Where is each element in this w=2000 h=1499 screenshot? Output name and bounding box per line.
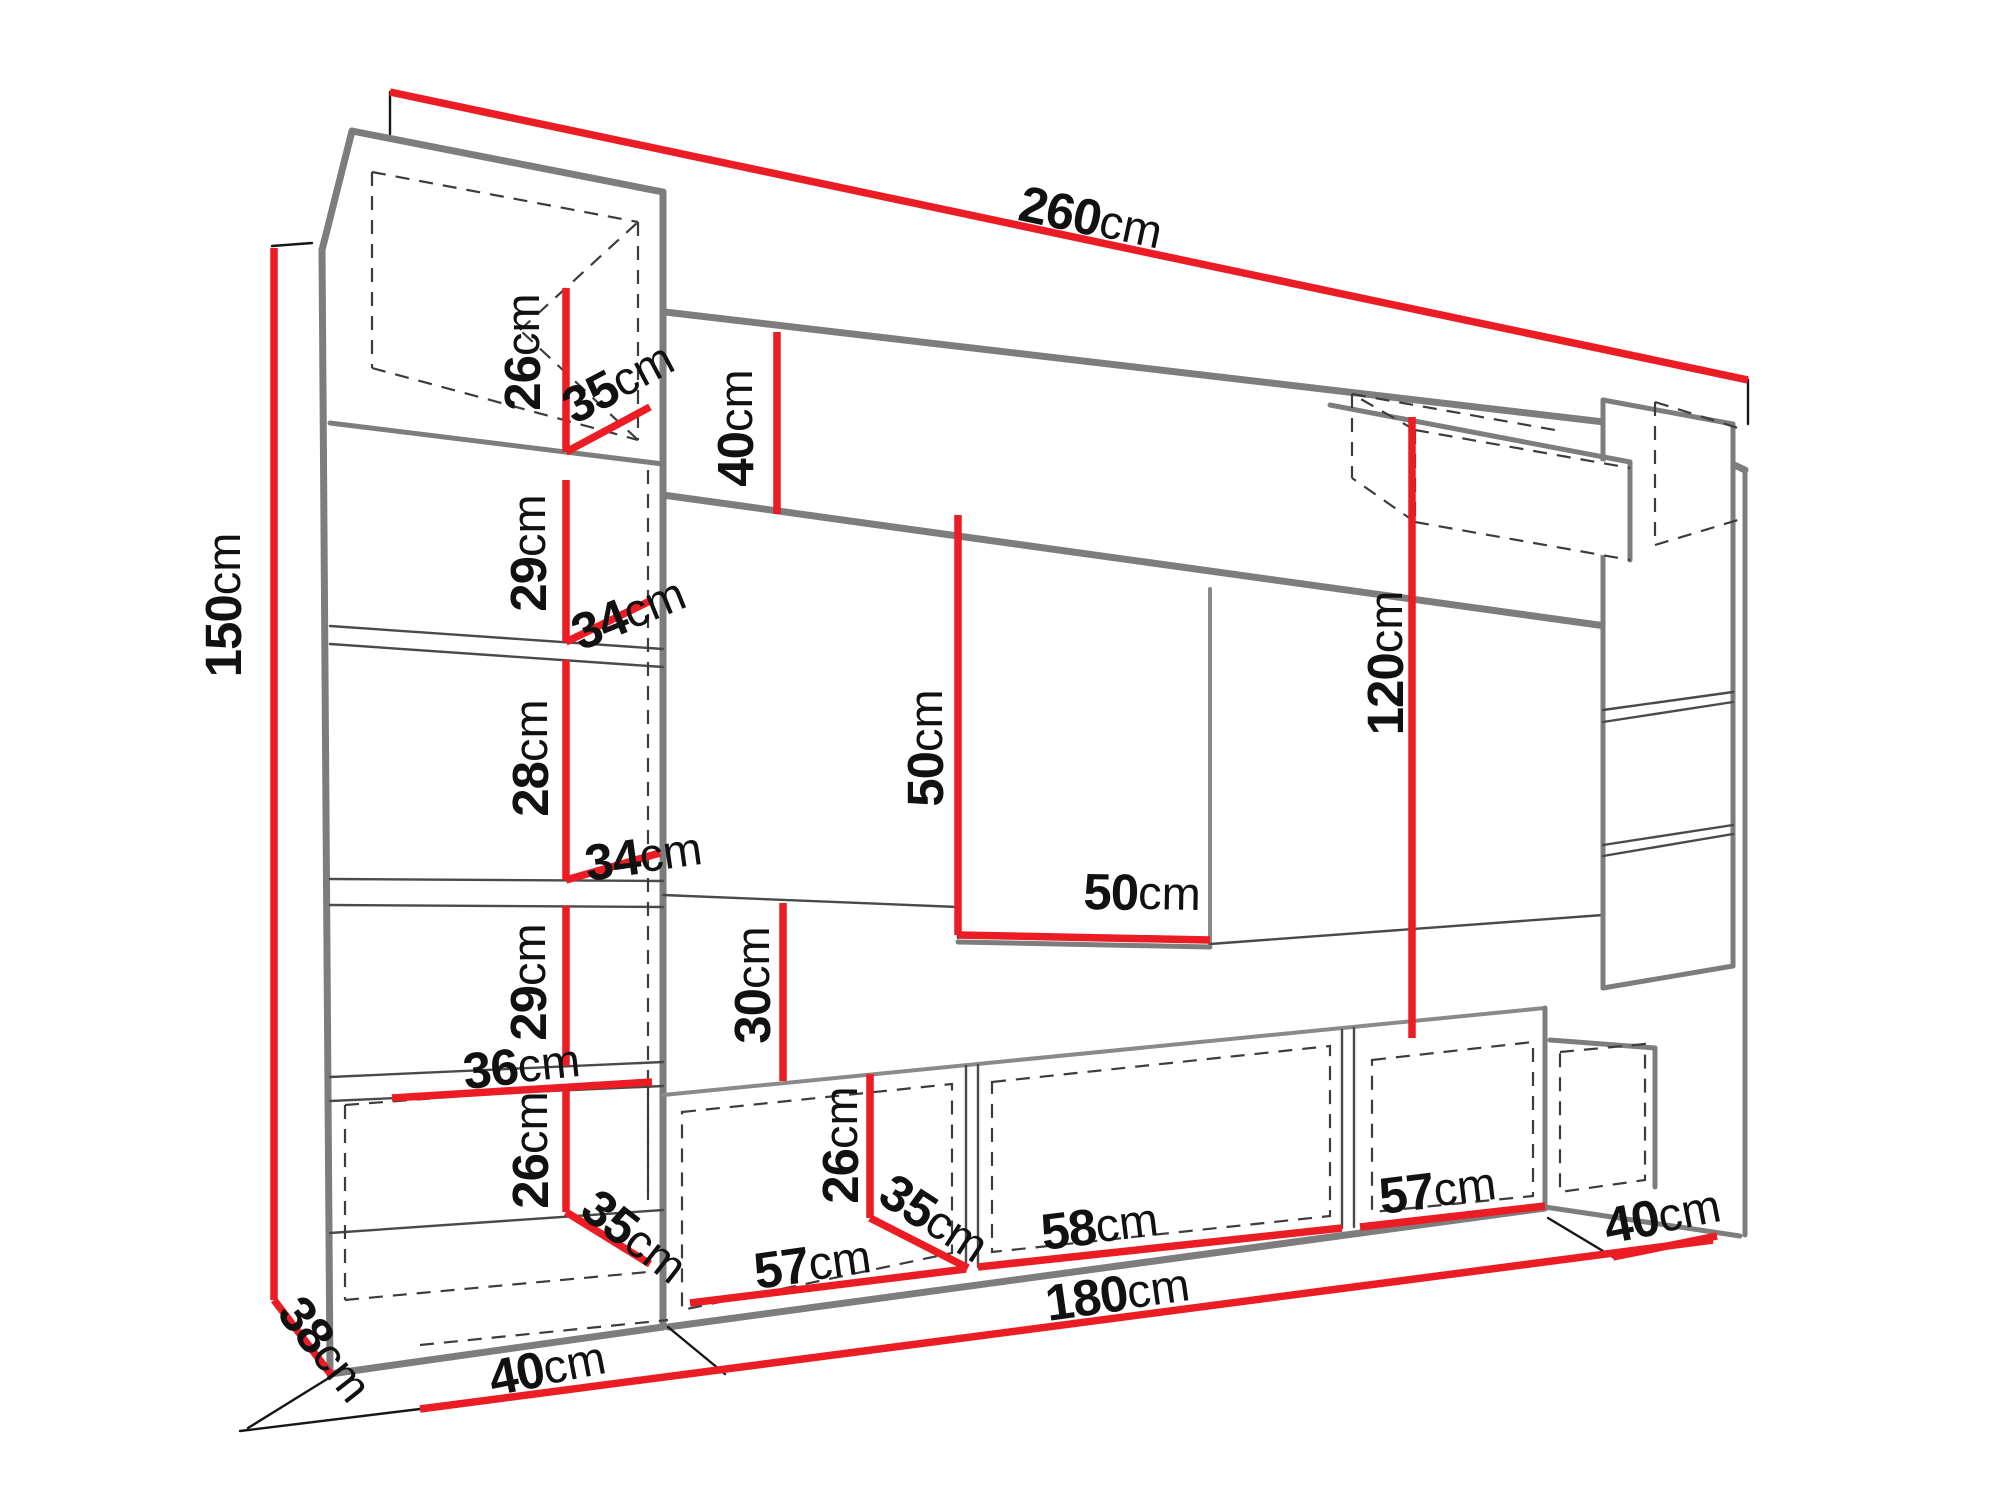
dimension-label-top-beam-height: 40cm <box>707 369 764 486</box>
right-cube-group <box>1330 405 1630 560</box>
dimension-label-left-shelf-2-depth: 34cm <box>581 820 705 893</box>
left-shelf-line <box>330 905 663 907</box>
dimension-label-left-base-floor-width: 40cm <box>484 1329 610 1407</box>
dimension-label-left-opening-1-height: 29cm <box>500 494 557 611</box>
dimension-label-left-base-height: 26cm <box>502 1091 559 1208</box>
dimension-label-bottom-row-width: 180cm <box>1042 1256 1193 1333</box>
right-cube-hidden-depth <box>1352 478 1415 522</box>
dim-extension <box>240 1409 420 1431</box>
wall-unit-drawing: 260cm150cm26cm35cm40cm29cm34cm28cm34cm29… <box>0 0 2000 1499</box>
dimension-label-tv-niche-height: 50cm <box>897 689 954 806</box>
dimension-label-tv-niche-width: 50cm <box>1083 863 1201 922</box>
furniture-dimension-diagram: 260cm150cm26cm35cm40cm29cm34cm28cm34cm29… <box>0 0 2000 1499</box>
dim-tick <box>272 243 312 246</box>
dimension-label-left-cube-height: 26cm <box>494 293 551 410</box>
right-base-cabinet-inner <box>1560 1044 1645 1192</box>
dimension-label-total-width: 260cm <box>1014 175 1167 261</box>
dimension-lines <box>274 92 1748 1409</box>
wall-shelf-line-left <box>663 895 958 907</box>
left-column-top-bevel <box>322 131 352 250</box>
dimension-label-middle-gap-height: 30cm <box>724 926 781 1043</box>
dimension-label-total-height: 150cm <box>195 533 252 678</box>
dimension-label-bottom-cabinet-height: 26cm <box>812 1086 869 1203</box>
dimension-label-right-column-height: 120cm <box>1357 591 1414 736</box>
dimension-label-left-opening-3-height: 29cm <box>500 923 557 1040</box>
dimension-label-bottom-cabinet-1-width: 57cm <box>750 1228 874 1301</box>
left-base-hidden-edge <box>345 1272 648 1300</box>
dim-line-50-horizontal <box>958 935 1210 940</box>
wall-shelf-line-right <box>1210 915 1603 944</box>
dimension-label-left-opening-2-height: 28cm <box>502 699 559 816</box>
dimension-label-total-depth: 38cm <box>267 1286 384 1414</box>
left-column-left-edge <box>322 250 330 1374</box>
